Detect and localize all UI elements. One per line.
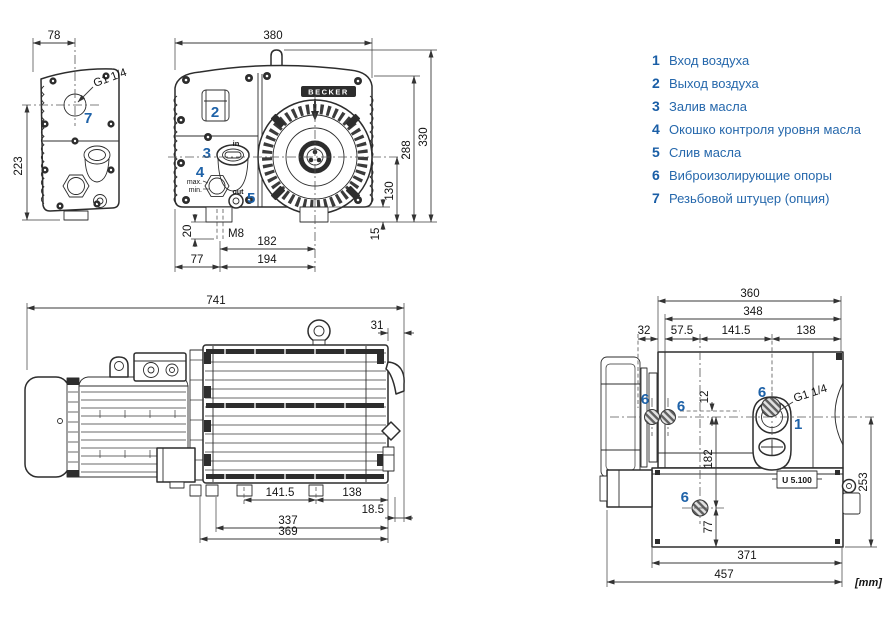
legend-item-5: 5 Слив масла [652, 144, 861, 160]
callout-2: 2 [211, 104, 219, 121]
vibration-mount [661, 410, 676, 425]
pump-body-side [203, 345, 388, 483]
dim-130: 130 [384, 181, 396, 200]
dim-138-top: 138 [796, 325, 815, 337]
pump-body-top [658, 352, 843, 468]
callout-5: 5 [247, 190, 255, 207]
motor-fan-cover [25, 377, 69, 477]
foot [206, 485, 218, 496]
dim-12: 12 [699, 391, 711, 404]
dim-18-5: 18.5 [362, 504, 384, 516]
legend: 1 Вход воздуха 2 Выход воздуха 3 Залив м… [652, 52, 861, 206]
label-min: min. [189, 187, 202, 194]
legend-item-1: 1 Вход воздуха [652, 52, 861, 68]
dim-348: 348 [743, 306, 762, 318]
label-m8: M8 [228, 228, 244, 240]
dim-plate-width: 78 [48, 30, 61, 42]
callout-6-a: 6 [641, 391, 649, 408]
callout-1: 1 [794, 416, 802, 433]
view-side: 741 31 141.5 138 18.5 337 369 [25, 295, 414, 543]
dim-plate-height: 223 [13, 156, 25, 175]
dim-369: 369 [278, 526, 297, 538]
legend-item-label: Вход воздуха [669, 53, 749, 68]
legend-item-label: Резьбовой штуцер (опция) [669, 191, 829, 206]
legend-item-number: 3 [652, 98, 669, 114]
vibration-mount [645, 410, 660, 425]
legend-item-6: 6 Виброизолирующие опоры [652, 167, 861, 183]
dim-77-top: 77 [703, 521, 715, 534]
legend-item-label: Выход воздуха [669, 76, 759, 91]
dim-253: 253 [858, 472, 870, 491]
foot-left [206, 207, 232, 222]
foot [190, 485, 201, 496]
legend-item-2: 2 Выход воздуха [652, 75, 861, 91]
foot [64, 211, 88, 220]
dim-138: 138 [342, 487, 361, 499]
view-front: BECKER [168, 30, 437, 272]
technical-drawing-page: 78 223 G1 1/4 7 BECKER [0, 0, 895, 625]
nameplate-text: U 5.100 [782, 475, 812, 485]
motor-end-box [607, 470, 652, 507]
dim-360: 360 [740, 288, 759, 300]
dim-32: 32 [638, 325, 651, 337]
dim-77: 77 [191, 254, 204, 266]
terminal-box [134, 353, 186, 381]
callout-3: 3 [203, 145, 211, 162]
legend-item-4: 4 Окошко контроля уровня масла [652, 121, 861, 137]
legend-item-label: Слив масла [669, 145, 741, 160]
brand-logo-text: BECKER [308, 88, 349, 97]
dim-57-5: 57.5 [671, 325, 693, 337]
dim-288: 288 [401, 140, 413, 159]
view-side-plate: 78 223 G1 1/4 7 [13, 30, 129, 220]
dim-194: 194 [257, 254, 277, 266]
dim-15: 15 [370, 228, 382, 241]
dim-457: 457 [714, 569, 733, 581]
dim-182: 182 [257, 236, 276, 248]
dim-182-top: 182 [703, 449, 715, 468]
exhaust-top-view [843, 480, 856, 493]
legend-item-number: 1 [652, 52, 669, 68]
callout-7: 7 [84, 110, 92, 127]
legend-item-3: 3 Залив масла [652, 98, 861, 114]
oil-drain-port [229, 194, 243, 208]
legend-item-number: 7 [652, 190, 669, 206]
label-max: max. [187, 179, 202, 186]
dim-371: 371 [737, 550, 756, 562]
legend-item-label: Окошко контроля уровня масла [669, 122, 861, 137]
dim-31: 31 [371, 320, 384, 332]
label-out: out [233, 189, 245, 196]
dim-20: 20 [182, 225, 194, 238]
callout-6-b: 6 [677, 398, 685, 415]
legend-item-number: 6 [652, 167, 669, 183]
callout-6-d: 6 [681, 489, 689, 506]
oil-fill-port [217, 145, 249, 165]
view-top: U 5.100 6 6 6 6 [600, 288, 882, 589]
dim-141-5: 141.5 [266, 487, 295, 499]
legend-item-label: Залив масла [669, 99, 747, 114]
foot-right [300, 207, 328, 222]
callout-6-c: 6 [758, 384, 766, 401]
unit-note: [mm] [854, 577, 882, 589]
foot [237, 485, 252, 496]
dim-330: 330 [418, 127, 430, 146]
legend-item-label: Виброизолирующие опоры [669, 168, 832, 183]
label-in: in [233, 139, 240, 148]
legend-item-number: 2 [652, 75, 669, 91]
legend-item-number: 4 [652, 121, 669, 137]
dim-141-5-top: 141.5 [722, 325, 751, 337]
legend-item-number: 5 [652, 144, 669, 160]
dim-width-380: 380 [263, 30, 282, 42]
dim-741: 741 [206, 295, 225, 307]
legend-item-7: 7 Резьбовой штуцер (опция) [652, 190, 861, 206]
